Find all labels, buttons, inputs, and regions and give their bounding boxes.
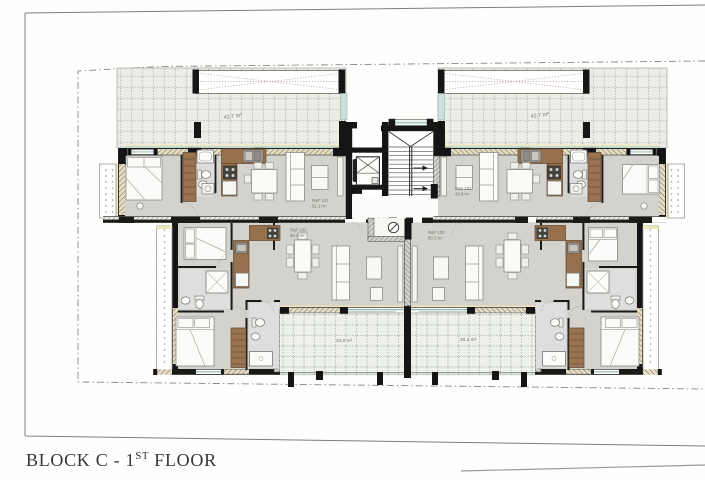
svg-text:33.9 m²: 33.9 m² (336, 338, 353, 344)
svg-text:RaF 102: RaF 102 (290, 228, 307, 233)
svg-text:RaF 103: RaF 103 (428, 230, 445, 235)
svg-text:20.2 m²: 20.2 m² (460, 337, 477, 343)
svg-text:80.6 m²: 80.6 m² (290, 233, 305, 238)
svg-text:80.3 m²: 80.3 m² (428, 236, 443, 241)
svg-text:51.1 m²: 51.1 m² (312, 204, 327, 209)
svg-text:49.9 m²: 49.9 m² (455, 192, 470, 197)
svg-text:RaF 101: RaF 101 (312, 198, 329, 203)
svg-text:RaF 104: RaF 104 (455, 186, 472, 191)
